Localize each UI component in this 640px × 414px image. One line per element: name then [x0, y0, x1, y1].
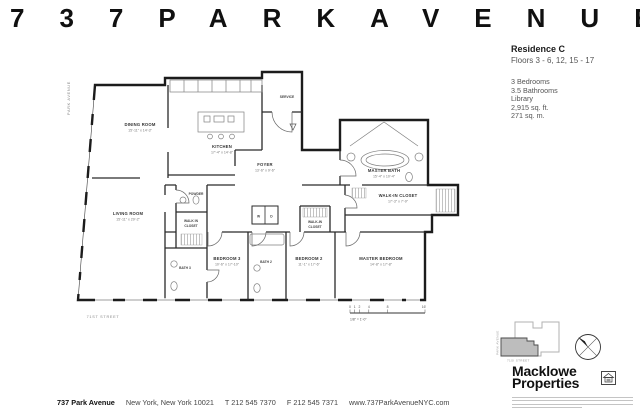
- room-label-bath2: BATH 2: [260, 260, 272, 264]
- room-label-kitchen: KITCHEN: [212, 144, 232, 149]
- footer-phone: T 212 545 7370: [225, 398, 276, 407]
- brand-line2: Properties: [512, 378, 579, 390]
- fine-print-line: [512, 397, 633, 398]
- keyplan-street-label: 71SI STREET: [507, 359, 530, 363]
- room-label-master-wic: WALK-IN CLOSET: [379, 193, 418, 198]
- fine-print-line: [512, 400, 633, 401]
- room-label-bedroom3: BEDROOM 3: [213, 256, 241, 261]
- room-label-service: SERVICE: [280, 95, 295, 99]
- keyplan: PARK AVENUE 71SI STREET: [496, 322, 560, 363]
- room-label-living: LIVING ROOM: [113, 211, 144, 216]
- scale-tick-0: 0: [349, 305, 351, 309]
- scale-tick-1: 1: [354, 305, 356, 309]
- keyplan-avenue-label: PARK AVENUE: [496, 330, 500, 355]
- room-dims-master-bath: 15'-4" x 10'-4": [373, 175, 396, 179]
- floorplan-sheet: 737PARKAVENUE Residence C Floors 3 - 6, …: [0, 0, 640, 414]
- footer-address: New York, New York 10021: [126, 398, 214, 407]
- street-label: 71ST STREET: [87, 315, 120, 319]
- room-label-powder: POWDER: [189, 192, 204, 196]
- contact-footer: 737 Park Avenue New York, New York 10021…: [57, 398, 458, 407]
- room-dims-dining: 15'-11" x 14'-3": [128, 129, 153, 133]
- room-dims-kitchen: 17'-4" x 14'-8": [211, 151, 234, 155]
- scale-tick-8: 8: [387, 305, 389, 309]
- macklowe-properties-logo: Macklowe Properties: [512, 366, 579, 389]
- compass-icon: [576, 335, 601, 360]
- scale-tick-16: 16': [422, 305, 427, 309]
- room-dims-living: 15'-11" x 29'-2": [116, 218, 141, 222]
- outer-walls: [78, 72, 458, 300]
- room-label-wic2-line2: CLOSET: [308, 225, 321, 229]
- room-label-master-bedroom: MASTER BEDROOM: [359, 256, 403, 261]
- room-label-master-bath: MASTER BATH: [368, 168, 400, 173]
- room-label-wic3-line1: WALK IN: [184, 219, 199, 223]
- floorplan-drawing: W D DINING ROOM 15'-11" x 14'-3" KITCHEN…: [0, 0, 640, 414]
- room-label-bath3: BATH 3: [179, 266, 191, 270]
- room-dims-foyer: 13'-6" x 9'-6": [255, 169, 276, 173]
- park-avenue-label: PARK AVENUE: [67, 81, 71, 115]
- equal-housing-icon: [602, 372, 616, 385]
- disclaimer-fine-print: [512, 397, 633, 410]
- footer-fax: F 212 545 7371: [287, 398, 338, 407]
- room-dims-bedroom2: 11'-1" x 17'-6": [298, 263, 321, 267]
- room-label-foyer: FOYER: [257, 162, 272, 167]
- fine-print-line: [512, 404, 633, 405]
- scale-tick-2: 2: [358, 305, 360, 309]
- fine-print-line: [512, 407, 582, 408]
- room-dims-master-bedroom: 14'-8" x 17'-8": [370, 263, 393, 267]
- scale-bar: 0 1 2 4 8 16' 1/8" = 1'-0": [349, 305, 427, 322]
- room-label-wic2-line1: WALK-IN: [308, 220, 323, 224]
- footer-website[interactable]: www.737ParkAvenueNYC.com: [349, 398, 449, 407]
- keyplan-unit-highlight: [501, 338, 538, 356]
- room-label-dining: DINING ROOM: [124, 122, 155, 127]
- room-dims-bedroom3: 10'-6" x 17'-10": [215, 263, 240, 267]
- room-dims-master-wic: 17'-3" x 7'-9": [388, 200, 409, 204]
- scale-tick-4: 4: [368, 305, 370, 309]
- footer-building-name: 737 Park Avenue: [57, 398, 115, 407]
- scale-ratio: 1/8" = 1'-0": [350, 318, 367, 322]
- room-label-wic3-line2: CLOSET: [184, 224, 197, 228]
- room-label-bedroom2: BEDROOM 2: [295, 256, 323, 261]
